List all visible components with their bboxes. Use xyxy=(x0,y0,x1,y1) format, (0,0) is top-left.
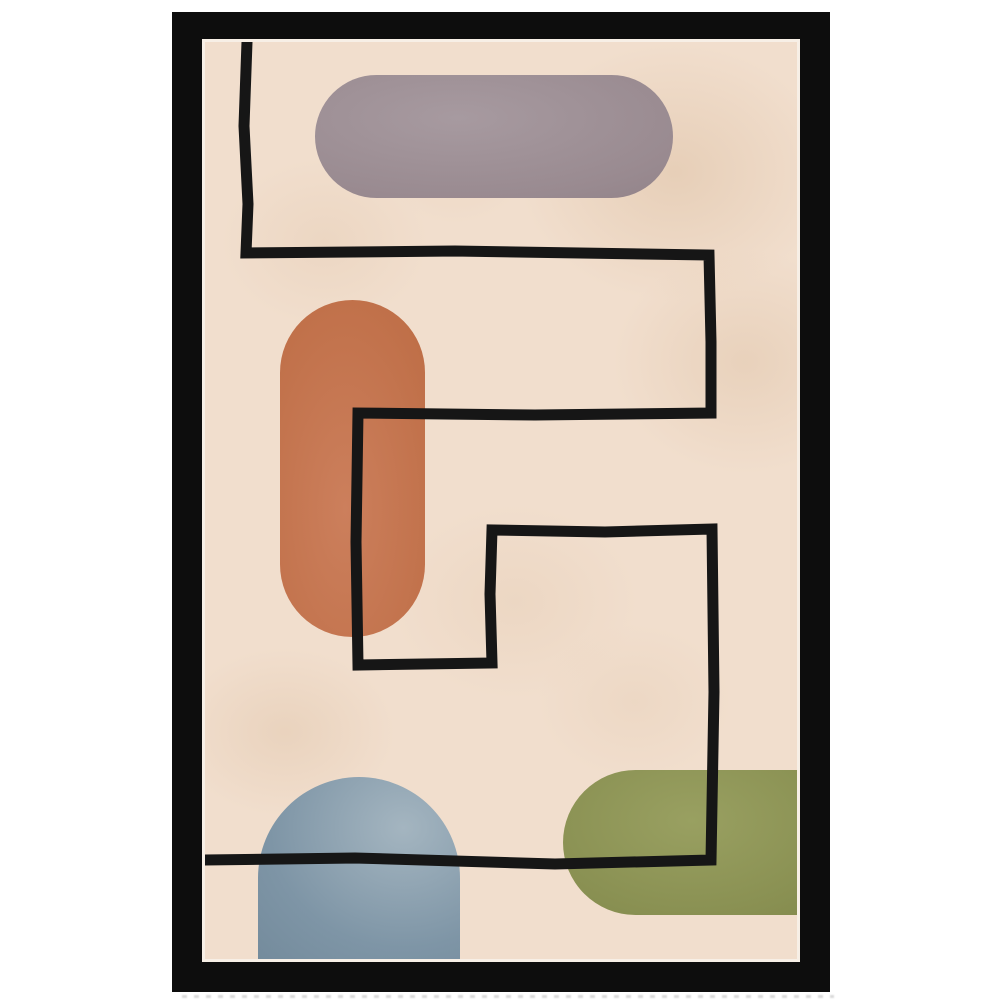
abstract-artwork xyxy=(205,42,797,959)
meander-stroke-sketch-a xyxy=(208,42,717,862)
meander-stroke-main xyxy=(205,42,714,864)
black-meander-line xyxy=(205,42,797,959)
meander-stroke-sketch-b xyxy=(205,44,712,866)
mockup-canvas xyxy=(0,0,1000,1000)
frame-drop-shadow xyxy=(182,995,834,998)
poster-frame xyxy=(172,12,830,992)
